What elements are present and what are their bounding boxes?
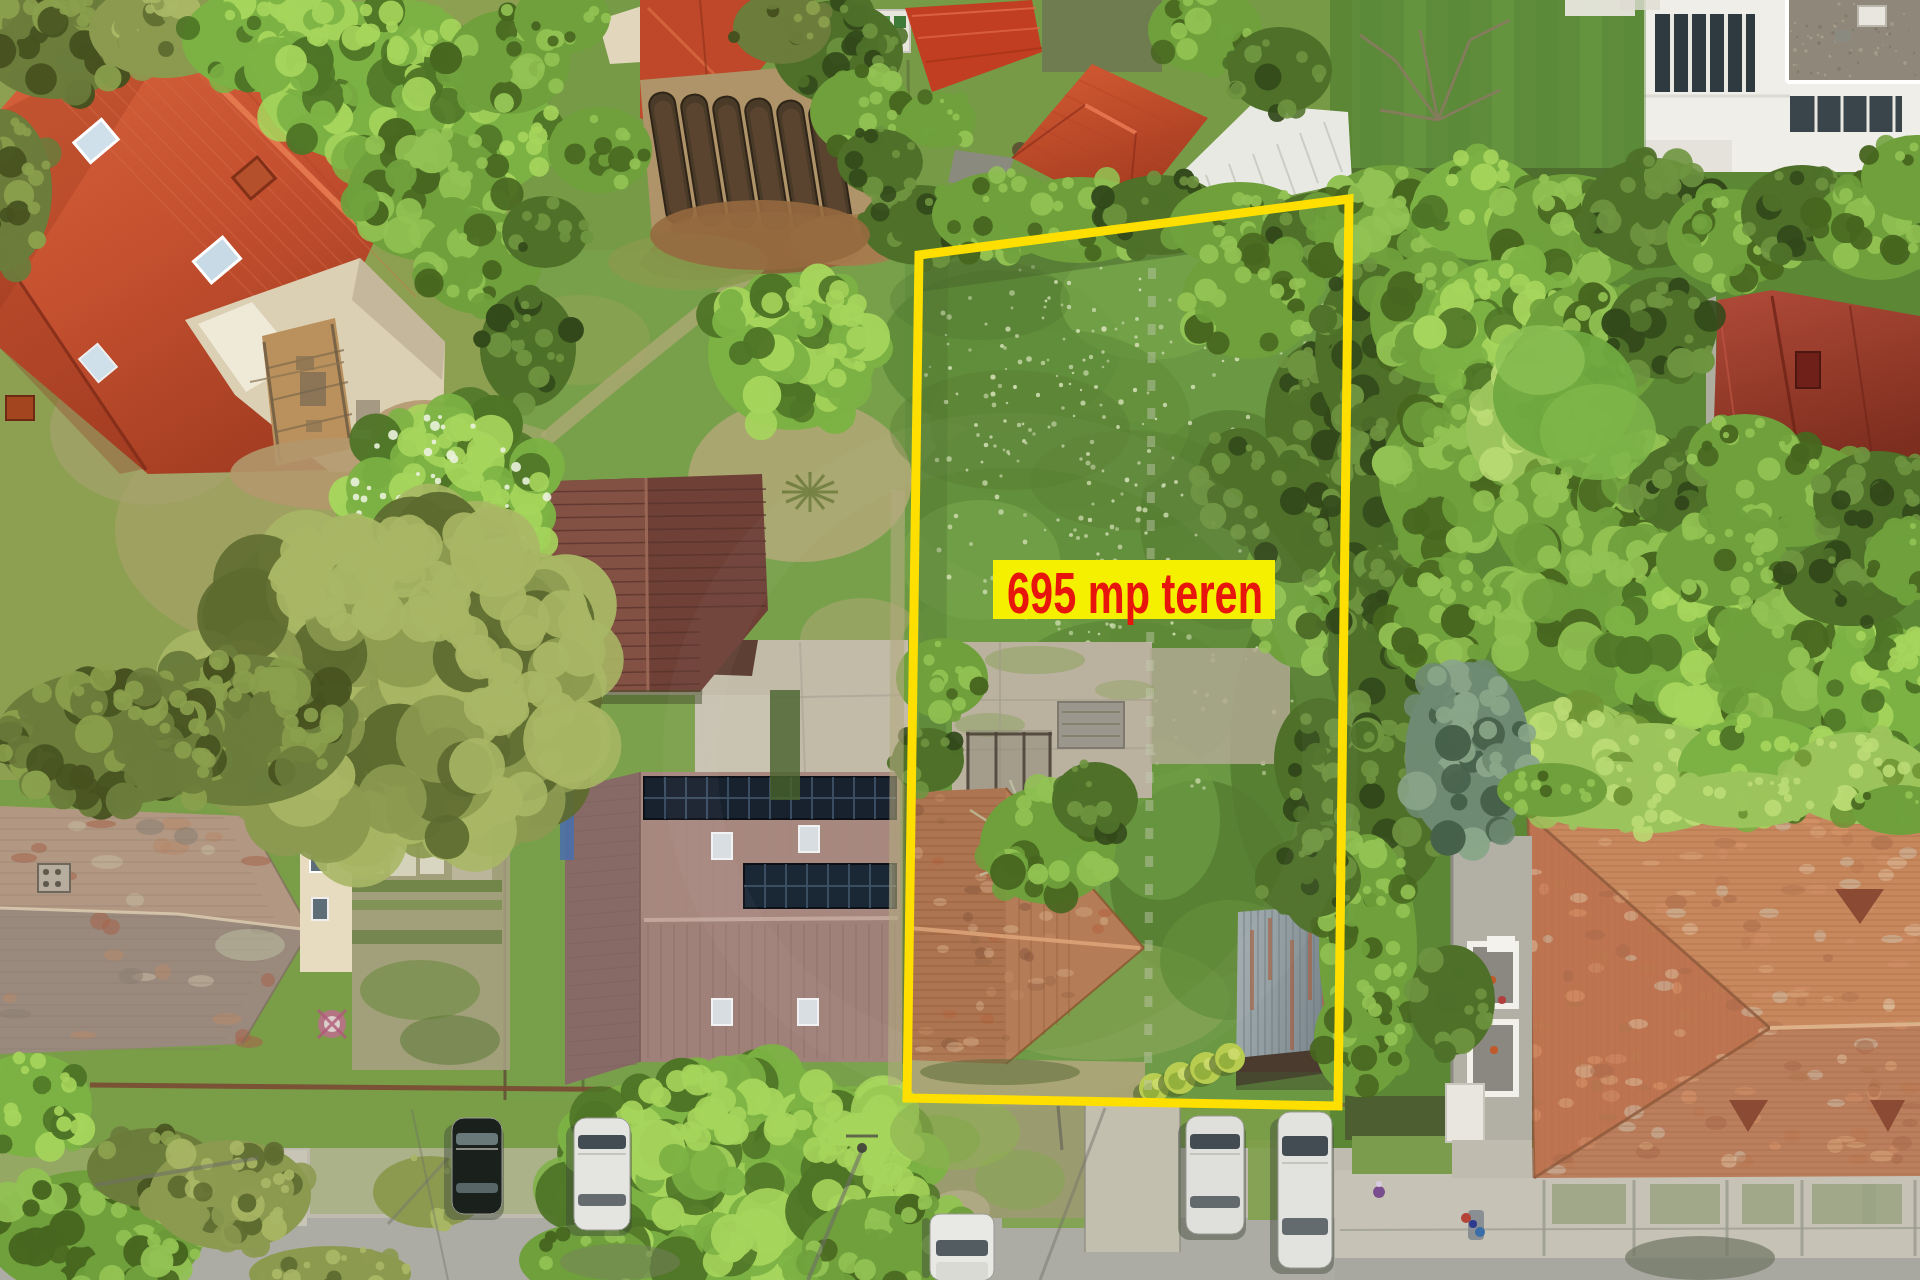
svg-text:695 mp teren: 695 mp teren xyxy=(1007,561,1263,625)
